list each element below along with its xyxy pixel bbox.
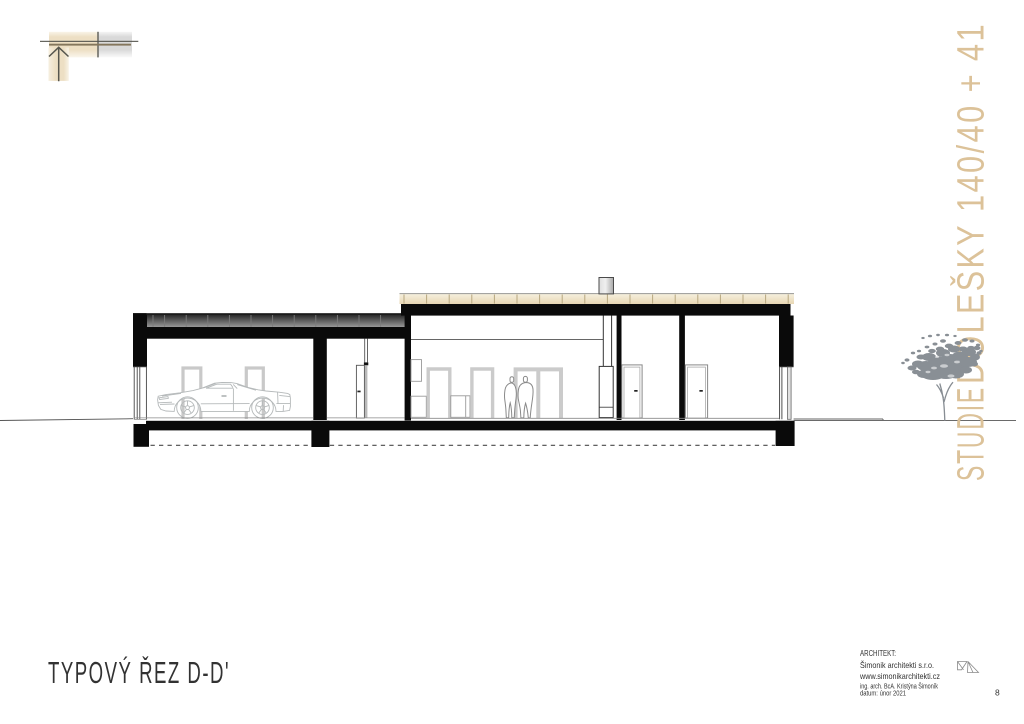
svg-text:8: 8: [995, 688, 1000, 698]
svg-text:140/40 + 41: 140/40 + 41: [951, 22, 993, 212]
svg-text:Šimonik architekti s.r.o.: Šimonik architekti s.r.o.: [860, 660, 934, 670]
svg-text:ARCHITEKT:: ARCHITEKT:: [860, 649, 896, 658]
svg-text:ing. arch. BcA. Kristýna Šimon: ing. arch. BcA. Kristýna Šimoník: [860, 682, 938, 691]
svg-text:www.simonikarchitekti.cz: www.simonikarchitekti.cz: [859, 671, 940, 681]
svg-text:STUDIE: STUDIE: [951, 386, 993, 481]
svg-text:datum: únor 2021: datum: únor 2021: [860, 691, 906, 698]
svg-text:TYPOVÝ ŘEZ D-D': TYPOVÝ ŘEZ D-D': [48, 655, 230, 690]
